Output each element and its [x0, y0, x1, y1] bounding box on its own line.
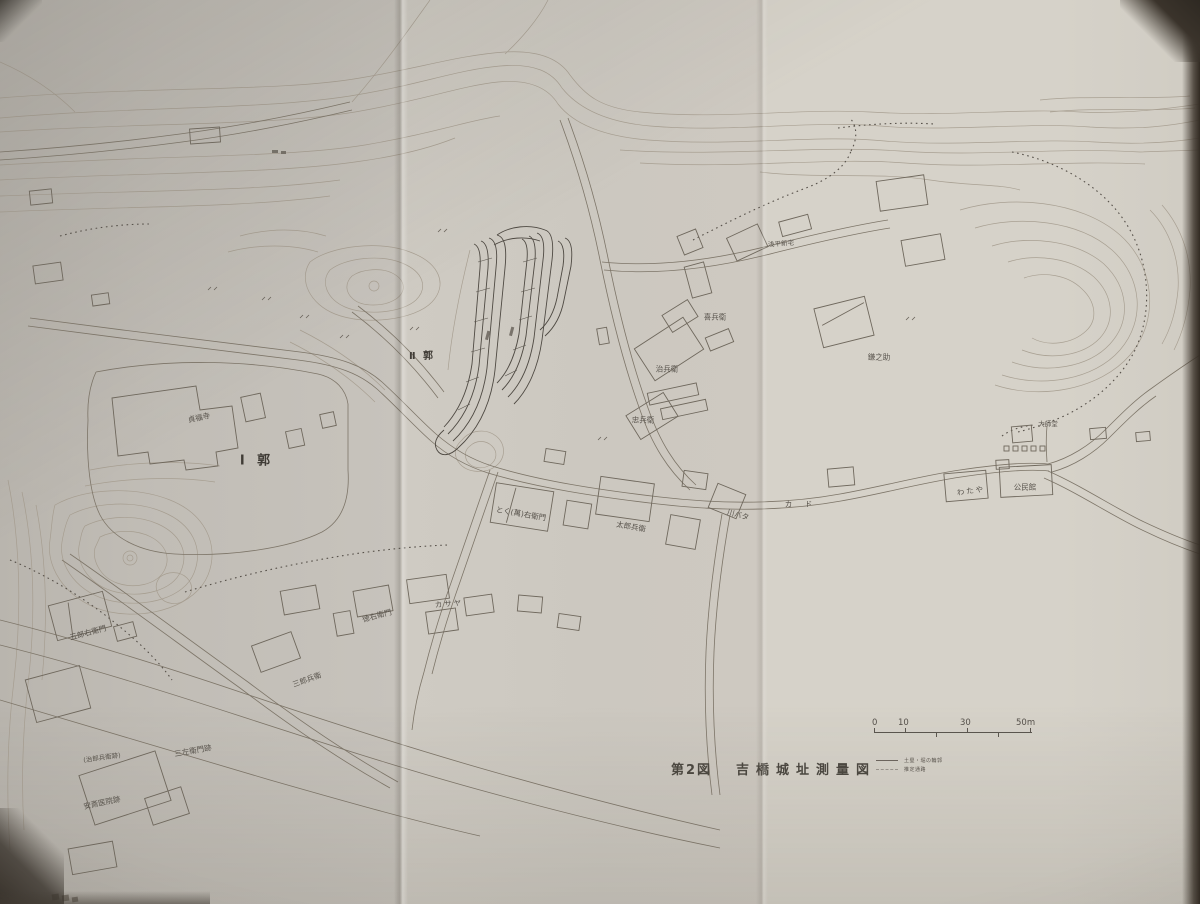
photo-corner [0, 0, 42, 42]
photo-edge [0, 891, 210, 904]
photo-edge [1182, 0, 1200, 904]
photo-corner [1120, 0, 1200, 62]
photographed-survey-map-page: Ⅰ 郭Ⅱ 郭貞福寺浅平新宅喜兵衛治兵衛忠兵衛鎌之助大師堂わたや公民館カ ド川バタ… [0, 0, 1200, 904]
photo-corner [0, 808, 64, 904]
photo-vignette [0, 0, 1200, 904]
